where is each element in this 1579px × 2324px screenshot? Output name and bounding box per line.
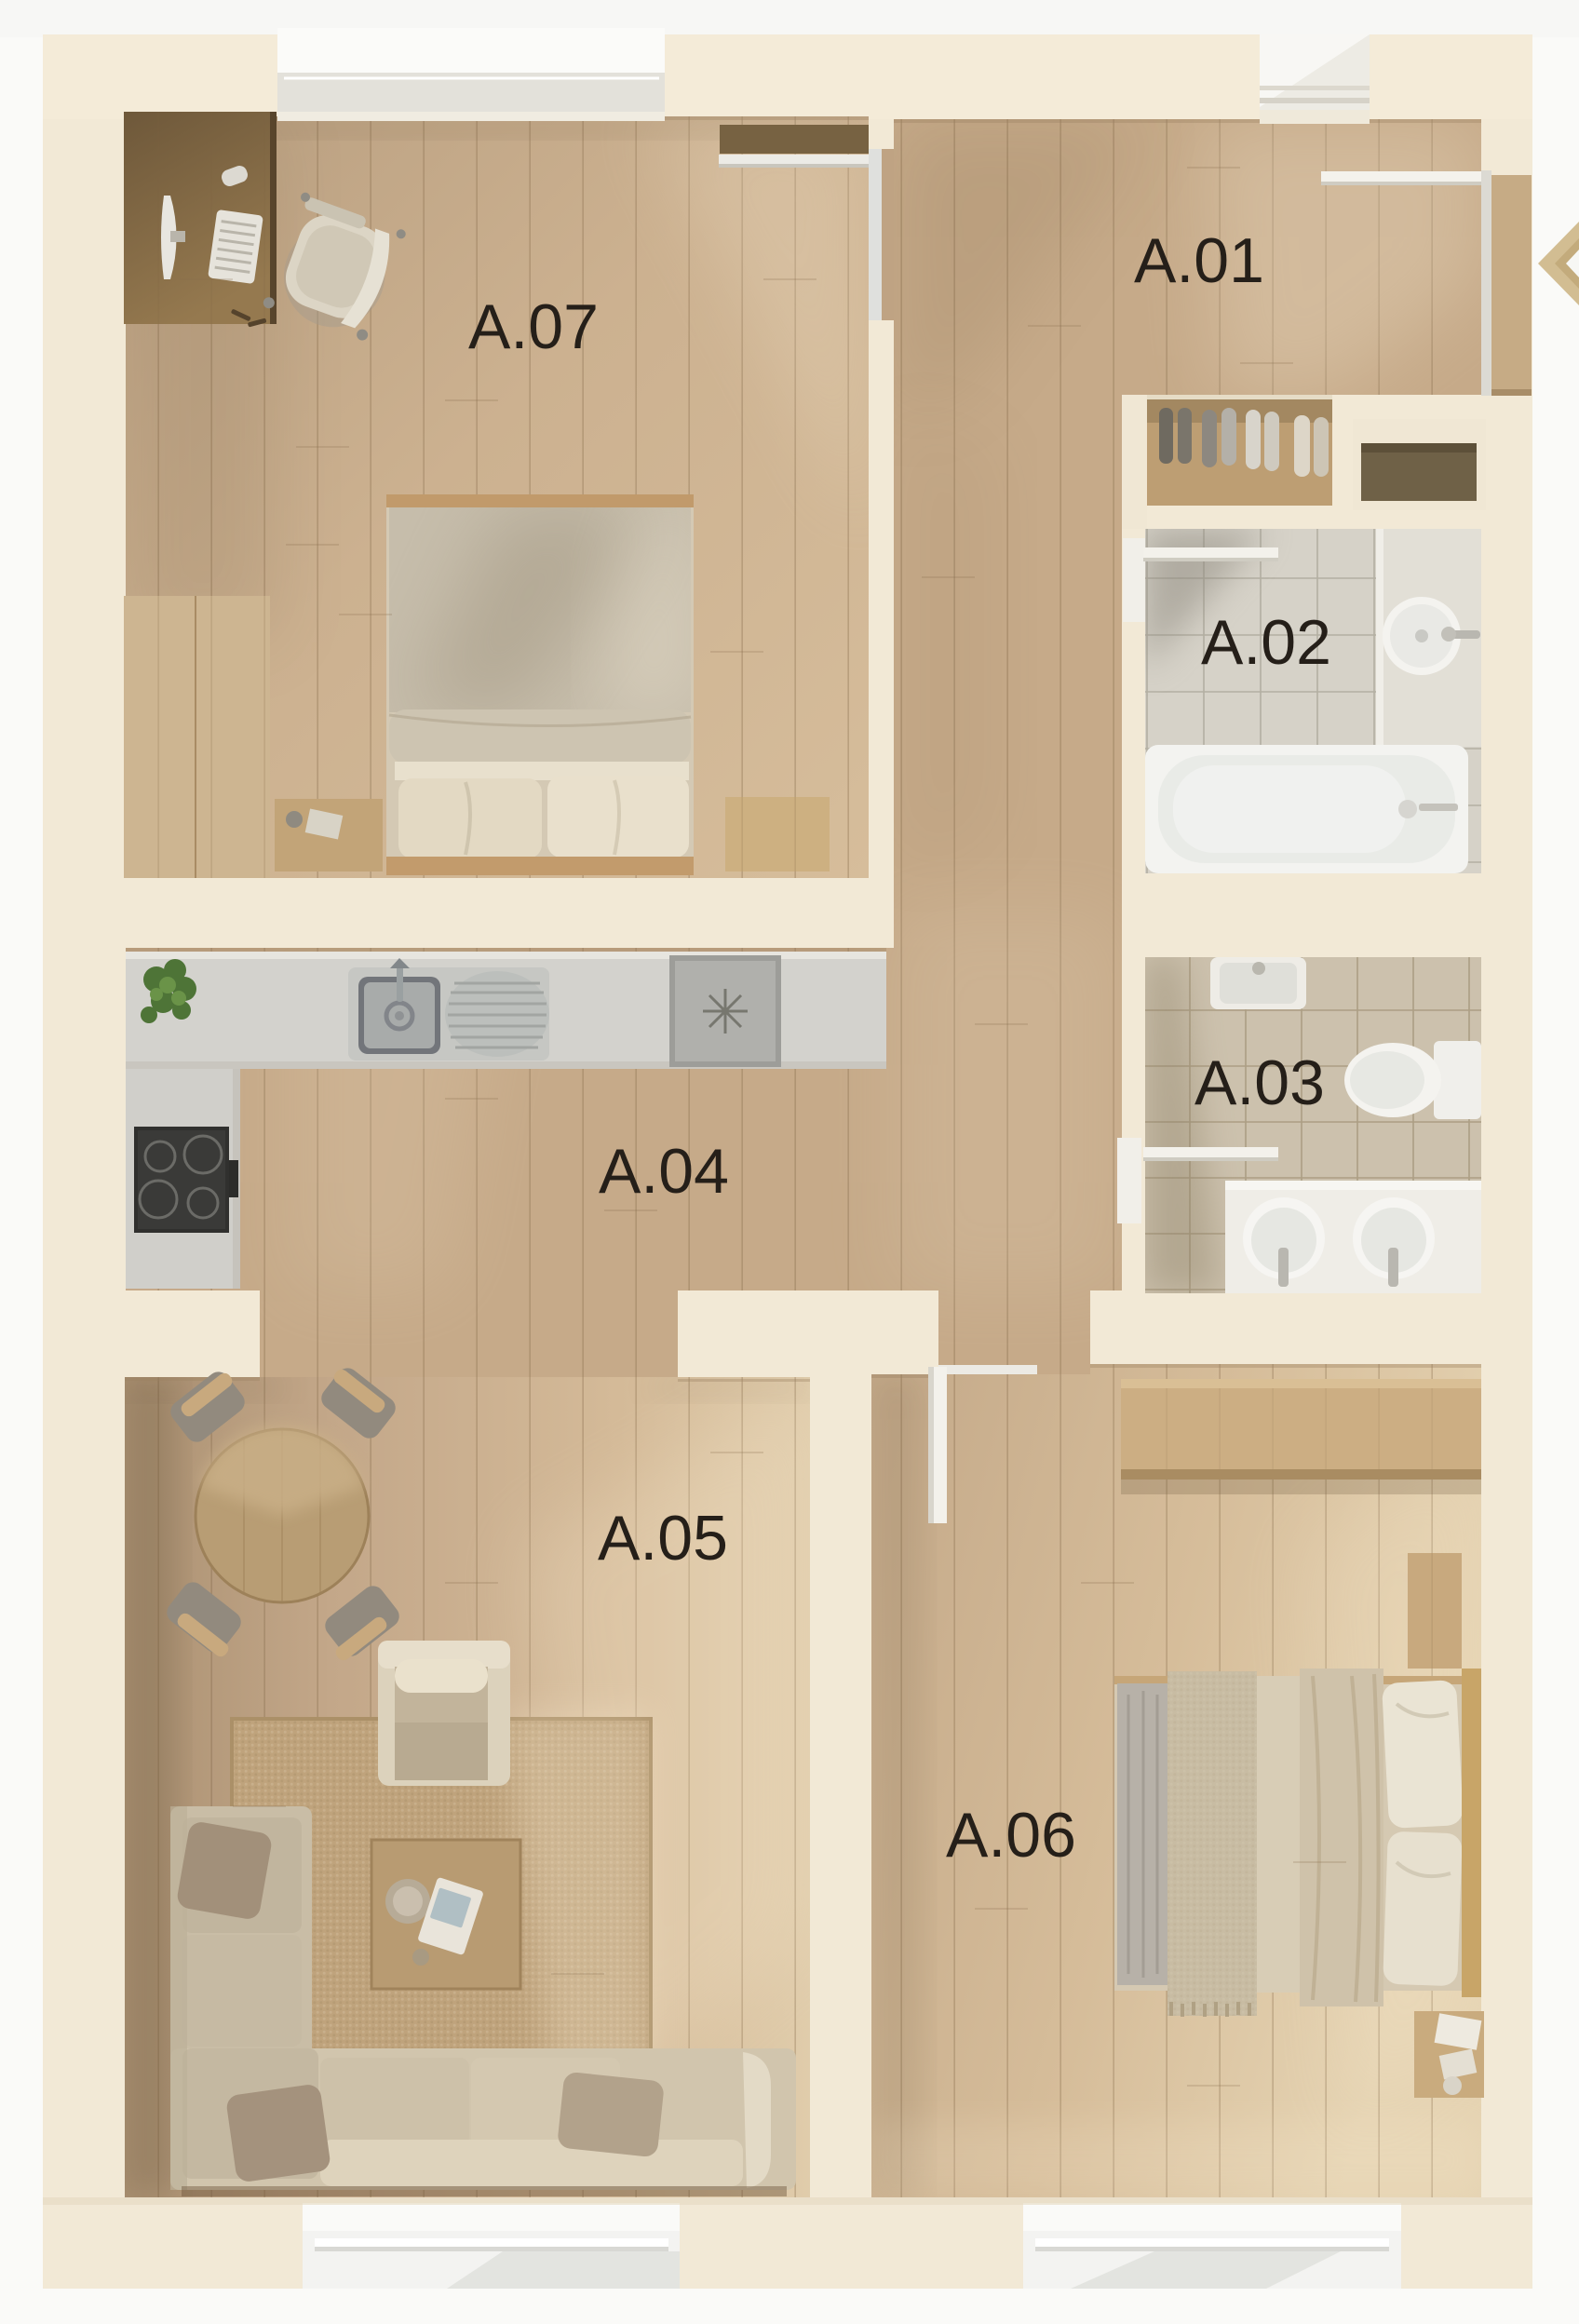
svg-text:A.07: A.07 <box>468 291 599 362</box>
svg-text:A.01: A.01 <box>1134 225 1264 296</box>
svg-text:A.02: A.02 <box>1201 607 1331 678</box>
svg-text:A.06: A.06 <box>946 1800 1076 1871</box>
svg-text:A.04: A.04 <box>599 1136 729 1207</box>
svg-text:A.05: A.05 <box>598 1503 728 1574</box>
svg-text:A.03: A.03 <box>1194 1047 1325 1118</box>
